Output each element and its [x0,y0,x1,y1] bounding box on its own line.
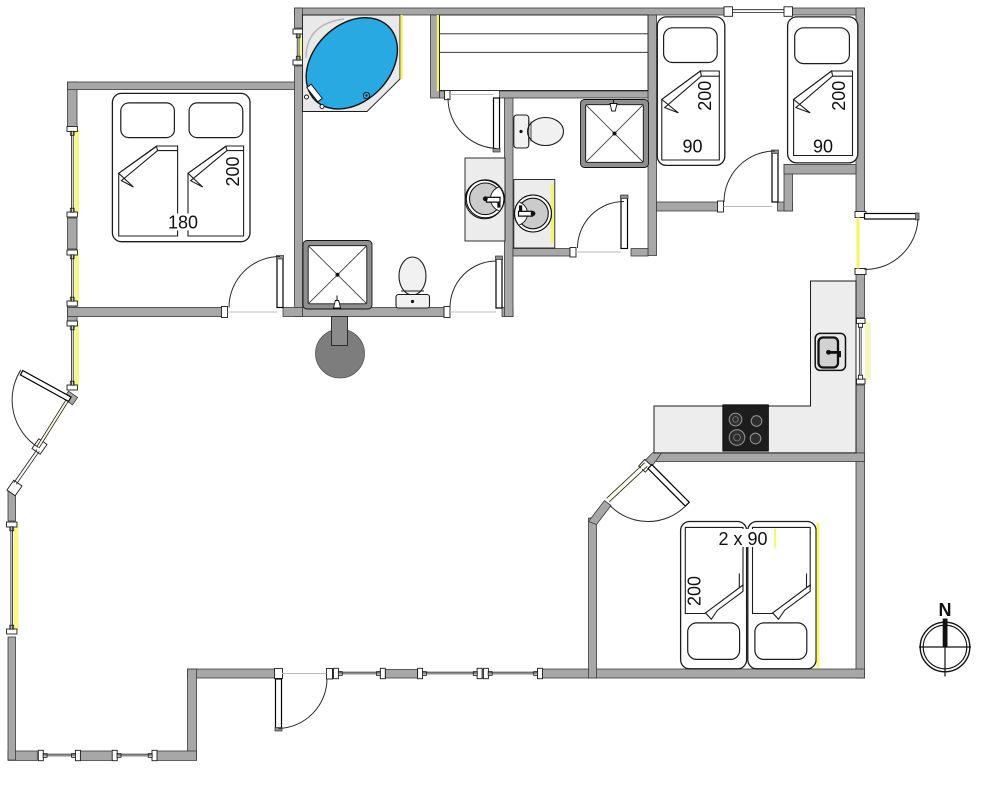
svg-text:180: 180 [168,213,198,233]
svg-text:200: 200 [695,81,715,111]
svg-text:200: 200 [223,156,243,186]
svg-text:N: N [939,600,952,620]
svg-text:2 x 90: 2 x 90 [718,529,767,549]
svg-text:90: 90 [813,137,833,157]
svg-text:200: 200 [685,576,705,606]
svg-text:90: 90 [682,137,702,157]
svg-text:200: 200 [829,81,849,111]
